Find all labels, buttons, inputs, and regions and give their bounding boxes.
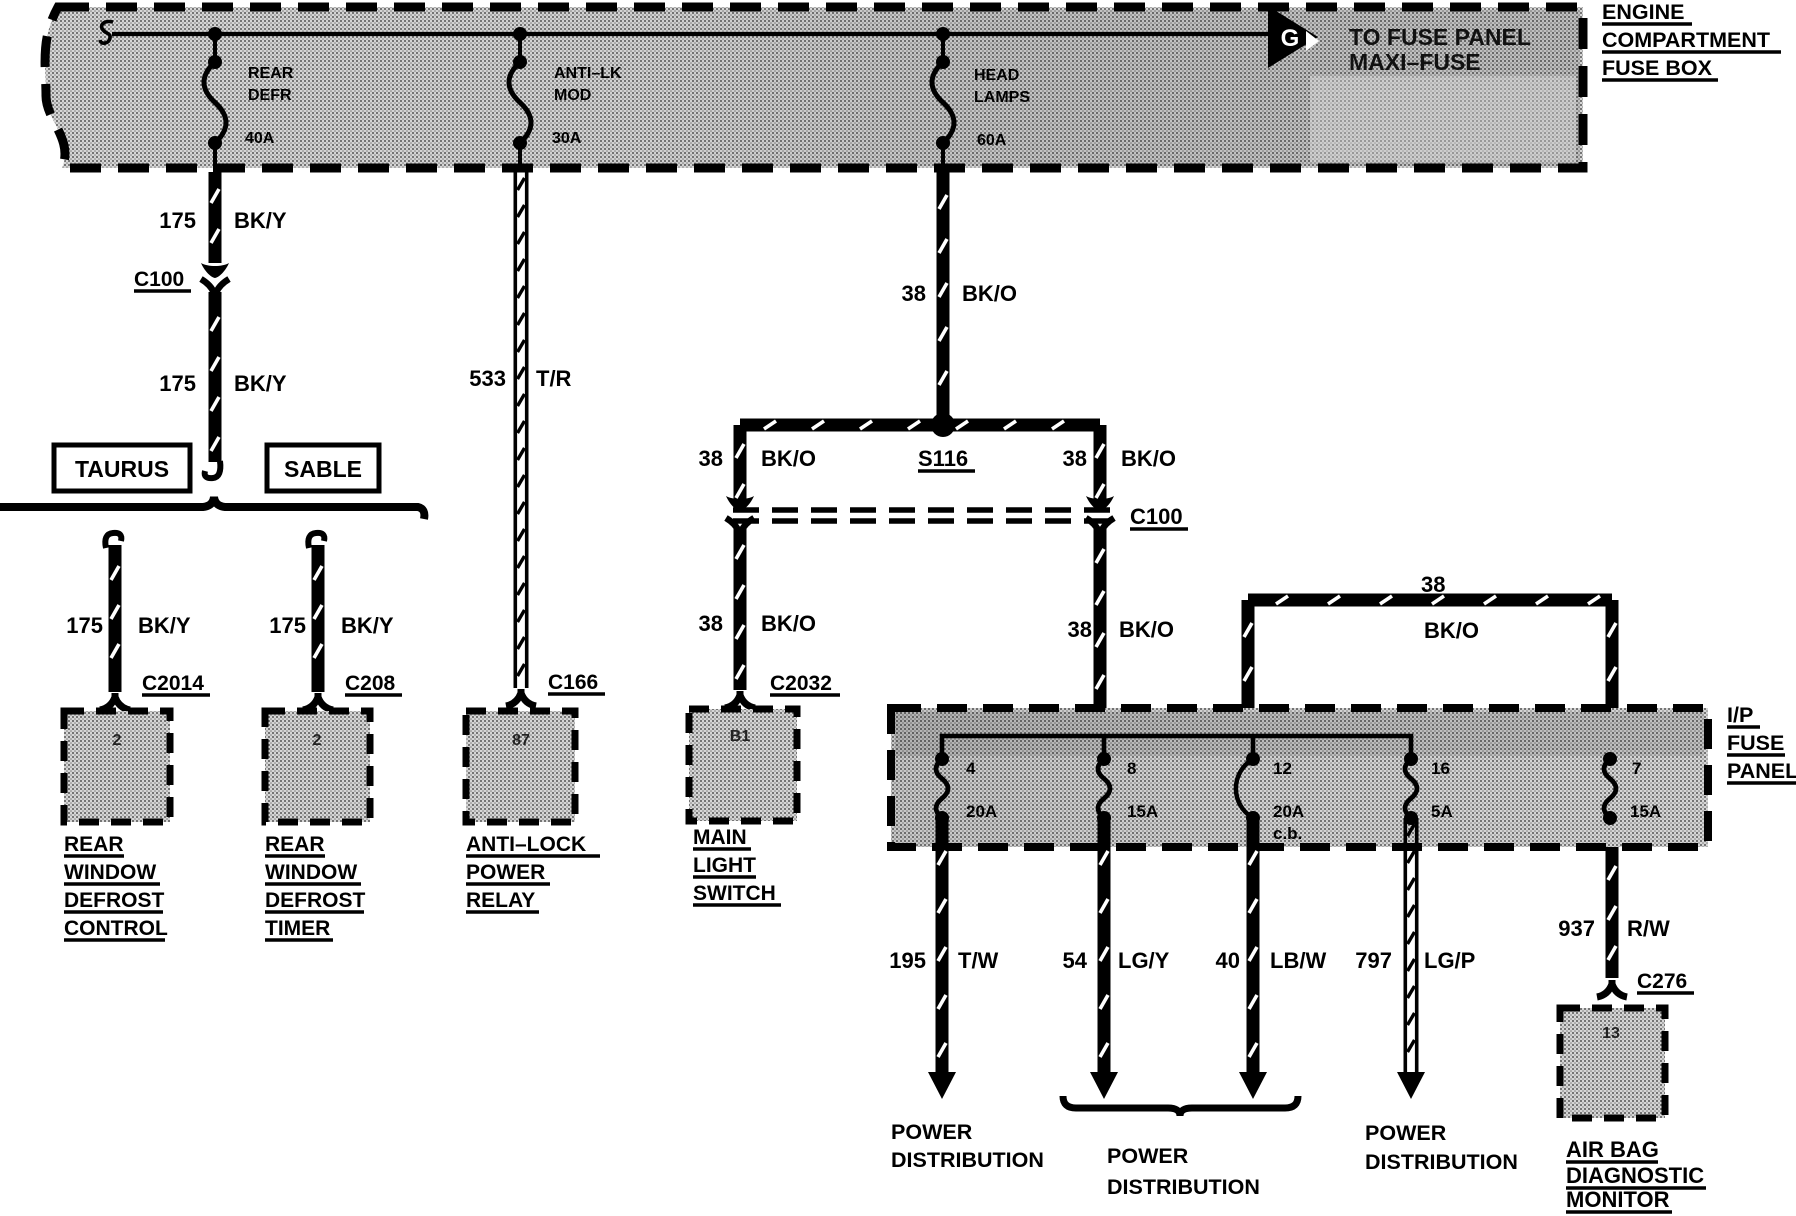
svg-text:40: 40 <box>1216 948 1240 973</box>
svg-text:S116: S116 <box>918 446 968 471</box>
svg-text:DEFROST: DEFROST <box>64 889 165 912</box>
svg-text:87: 87 <box>512 732 530 749</box>
svg-text:TIMER: TIMER <box>265 917 330 940</box>
svg-text:BK/O: BK/O <box>761 611 816 636</box>
svg-text:ANTI–LOCK: ANTI–LOCK <box>466 833 586 856</box>
svg-text:FUSE BOX: FUSE BOX <box>1602 56 1713 80</box>
svg-text:175: 175 <box>269 613 306 638</box>
svg-text:C276: C276 <box>1637 970 1687 993</box>
svg-text:8: 8 <box>1127 759 1136 778</box>
svg-text:POWER: POWER <box>1107 1144 1189 1168</box>
svg-text:POWER: POWER <box>1365 1121 1447 1145</box>
svg-text:C2032: C2032 <box>770 672 832 695</box>
svg-text:175: 175 <box>159 371 196 396</box>
svg-text:HEAD: HEAD <box>974 67 1019 84</box>
svg-text:30A: 30A <box>552 130 582 147</box>
svg-text:ANTI–LK: ANTI–LK <box>554 65 622 82</box>
svg-text:SABLE: SABLE <box>284 456 362 482</box>
svg-text:20A: 20A <box>966 802 997 821</box>
svg-text:MAXI–FUSE: MAXI–FUSE <box>1349 49 1481 75</box>
svg-text:LAMPS: LAMPS <box>974 89 1030 106</box>
svg-text:38: 38 <box>699 611 723 636</box>
svg-text:BK/Y: BK/Y <box>341 613 394 638</box>
svg-text:AIR BAG: AIR BAG <box>1566 1137 1659 1162</box>
svg-text:BK/O: BK/O <box>1119 617 1174 642</box>
svg-text:POWER: POWER <box>466 861 545 884</box>
svg-text:C100: C100 <box>1130 504 1183 529</box>
svg-text:c.b.: c.b. <box>1273 824 1302 843</box>
svg-text:LIGHT: LIGHT <box>693 854 756 877</box>
svg-text:REAR: REAR <box>248 65 294 82</box>
svg-text:TAURUS: TAURUS <box>75 456 169 482</box>
svg-text:FUSE: FUSE <box>1727 731 1784 755</box>
svg-text:533: 533 <box>469 366 506 391</box>
svg-text:BK/O: BK/O <box>1121 446 1176 471</box>
svg-text:G: G <box>1281 25 1300 52</box>
svg-text:38: 38 <box>1421 572 1445 597</box>
svg-text:T/W: T/W <box>958 948 999 973</box>
svg-text:DEFROST: DEFROST <box>265 889 366 912</box>
svg-text:REAR: REAR <box>265 833 325 856</box>
svg-text:15A: 15A <box>1630 802 1661 821</box>
svg-text:POWER: POWER <box>891 1120 973 1144</box>
svg-text:38: 38 <box>1068 617 1092 642</box>
svg-text:ENGINE: ENGINE <box>1602 0 1684 24</box>
svg-text:7: 7 <box>1632 759 1641 778</box>
svg-text:12: 12 <box>1273 759 1292 778</box>
svg-text:I/P: I/P <box>1727 703 1753 727</box>
svg-text:BK/Y: BK/Y <box>234 371 287 396</box>
svg-text:DISTRIBUTION: DISTRIBUTION <box>1365 1150 1518 1174</box>
svg-text:195: 195 <box>889 948 926 973</box>
svg-text:REAR: REAR <box>64 833 124 856</box>
svg-text:DISTRIBUTION: DISTRIBUTION <box>891 1148 1044 1172</box>
svg-text:MAIN: MAIN <box>693 826 747 849</box>
svg-text:797: 797 <box>1355 948 1392 973</box>
svg-text:2: 2 <box>313 732 322 749</box>
svg-text:BK/O: BK/O <box>761 446 816 471</box>
svg-text:DEFR: DEFR <box>248 87 292 104</box>
svg-text:937: 937 <box>1558 916 1595 941</box>
svg-text:38: 38 <box>699 446 723 471</box>
svg-text:MONITOR: MONITOR <box>1566 1187 1670 1212</box>
svg-text:175: 175 <box>66 613 103 638</box>
svg-text:BK/O: BK/O <box>962 281 1017 306</box>
svg-text:SWITCH: SWITCH <box>693 882 776 905</box>
svg-text:WINDOW: WINDOW <box>64 861 156 884</box>
svg-text:R/W: R/W <box>1627 916 1670 941</box>
svg-text:4: 4 <box>966 759 976 778</box>
svg-text:PANEL: PANEL <box>1727 759 1796 783</box>
svg-text:DISTRIBUTION: DISTRIBUTION <box>1107 1175 1260 1199</box>
svg-text:38: 38 <box>1063 446 1087 471</box>
svg-text:LB/W: LB/W <box>1270 948 1326 973</box>
svg-text:38: 38 <box>902 281 926 306</box>
svg-text:B1: B1 <box>730 728 751 745</box>
svg-text:BK/O: BK/O <box>1424 618 1479 643</box>
svg-text:T/R: T/R <box>536 366 572 391</box>
svg-text:C208: C208 <box>345 672 396 695</box>
svg-text:RELAY: RELAY <box>466 889 535 912</box>
svg-text:13: 13 <box>1602 1025 1620 1042</box>
svg-text:WINDOW: WINDOW <box>265 861 357 884</box>
svg-text:54: 54 <box>1063 948 1088 973</box>
svg-text:175: 175 <box>159 208 196 233</box>
svg-text:C2014: C2014 <box>142 672 204 695</box>
svg-text:CONTROL: CONTROL <box>64 917 168 940</box>
svg-text:DIAGNOSTIC: DIAGNOSTIC <box>1566 1163 1704 1188</box>
svg-text:LG/Y: LG/Y <box>1118 948 1170 973</box>
svg-text:BK/Y: BK/Y <box>234 208 287 233</box>
svg-text:C100: C100 <box>134 268 184 291</box>
svg-text:2: 2 <box>113 732 122 749</box>
svg-text:C166: C166 <box>548 671 598 694</box>
svg-text:60A: 60A <box>977 132 1007 149</box>
svg-text:40A: 40A <box>245 130 275 147</box>
svg-text:BK/Y: BK/Y <box>138 613 191 638</box>
svg-text:20A: 20A <box>1273 802 1304 821</box>
svg-text:LG/P: LG/P <box>1424 948 1475 973</box>
svg-text:TO FUSE PANEL: TO FUSE PANEL <box>1349 24 1531 50</box>
svg-text:COMPARTMENT: COMPARTMENT <box>1602 28 1770 52</box>
svg-text:16: 16 <box>1431 759 1450 778</box>
svg-text:15A: 15A <box>1127 802 1158 821</box>
svg-text:MOD: MOD <box>554 87 591 104</box>
svg-text:5A: 5A <box>1431 802 1453 821</box>
